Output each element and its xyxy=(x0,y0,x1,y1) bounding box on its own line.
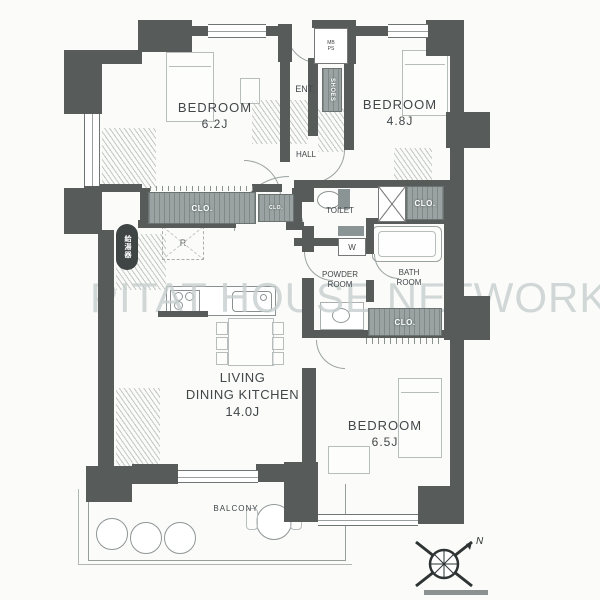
scale-bar xyxy=(424,590,488,595)
wall-segment xyxy=(98,184,142,192)
bath-line2: ROOM xyxy=(376,278,442,288)
wall-segment xyxy=(308,58,318,136)
curtain-hatch xyxy=(102,128,156,188)
wall-segment xyxy=(302,186,314,202)
curtain-hatch xyxy=(394,148,432,182)
wall-segment xyxy=(446,296,490,340)
curtain-hatch xyxy=(116,388,160,468)
window xyxy=(318,514,418,526)
wall-segment xyxy=(278,24,292,62)
entrance-label: ENT. xyxy=(284,84,326,96)
closet: CLO. xyxy=(406,186,444,220)
bedroom3-name: BEDROOM xyxy=(325,418,445,435)
water-heater-label: 給湯器 xyxy=(122,235,132,259)
washer-counter xyxy=(338,226,364,236)
wall-segment xyxy=(286,222,304,230)
ldk-size: 14.0J xyxy=(160,404,325,421)
wall-segment xyxy=(442,180,464,222)
compass-icon: N xyxy=(402,532,490,590)
bedroom3-size: 6.5J xyxy=(325,435,445,451)
bath-line1: BATH xyxy=(376,268,442,278)
wall-segment xyxy=(450,340,464,490)
window xyxy=(208,24,266,38)
closet: CLO. xyxy=(368,308,442,336)
closet: CLO. xyxy=(148,192,256,224)
powder-line1: POWDER xyxy=(305,270,375,280)
hall-label: HALL xyxy=(282,150,330,160)
bedroom2-label: BEDROOM 4.8J xyxy=(340,97,460,129)
dining-table xyxy=(228,318,274,366)
meter-box-label: MB PS xyxy=(325,40,337,52)
wall-segment xyxy=(138,20,192,52)
balcony-label: BALCONY xyxy=(196,504,276,514)
balcony-outer-line xyxy=(78,489,79,565)
sliding-door-ticks xyxy=(150,186,254,191)
chair xyxy=(272,322,284,335)
chair xyxy=(216,352,228,365)
kitchen-counter-edge xyxy=(158,311,208,317)
closet: CLO. xyxy=(258,194,294,222)
door-arc xyxy=(316,340,345,369)
wall-segment xyxy=(294,238,340,246)
meter-box: MB PS xyxy=(314,28,348,64)
bedroom3-label: BEDROOM 6.5J xyxy=(325,418,445,450)
powder-line2: ROOM xyxy=(305,280,375,290)
x-cross-icon xyxy=(379,187,405,221)
pipe-shaft xyxy=(378,186,406,222)
washer-label: W xyxy=(348,243,356,252)
floor-plan: PITAT HOUSE NETWORK xyxy=(0,0,600,600)
ldk-line1: LIVING xyxy=(160,370,325,387)
planter-icon xyxy=(96,518,128,550)
closet-label: CLO. xyxy=(414,199,435,208)
wall-segment xyxy=(284,462,318,522)
balcony-outer-line xyxy=(78,564,352,565)
water-heater: 給湯器 xyxy=(116,224,138,270)
chair xyxy=(272,337,284,350)
planter-icon xyxy=(164,522,196,554)
wall-segment xyxy=(132,464,178,484)
planter-icon xyxy=(130,522,162,554)
wall-segment xyxy=(366,218,374,254)
closet-label: CLO. xyxy=(394,318,415,327)
wall-segment xyxy=(252,184,282,192)
chair xyxy=(216,322,228,335)
washer-box: W xyxy=(338,238,366,256)
bedroom1-label: BEDROOM 6.2J xyxy=(145,100,285,132)
bedroom1-name: BEDROOM xyxy=(145,100,285,117)
wall-segment xyxy=(64,188,102,234)
wall-segment xyxy=(256,464,286,482)
ldk-line2: DINING KITCHEN xyxy=(160,387,325,404)
refrigerator-box: R xyxy=(162,226,204,260)
toilet-label: TOILET xyxy=(312,206,368,216)
shoes-label: SHOES xyxy=(329,78,335,102)
window xyxy=(388,24,428,38)
chair xyxy=(216,337,228,350)
closet-label: CLO. xyxy=(269,205,283,211)
sliding-door-ticks xyxy=(366,338,444,344)
bedroom2-name: BEDROOM xyxy=(340,97,460,114)
wall-segment xyxy=(64,50,102,114)
wall-segment xyxy=(188,26,210,36)
wall-segment xyxy=(100,50,142,64)
window xyxy=(84,114,100,186)
north-label: N xyxy=(476,536,484,547)
ldk-label: LIVING DINING KITCHEN 14.0J xyxy=(160,370,325,421)
chair xyxy=(272,352,284,365)
bedroom2-size: 4.8J xyxy=(340,114,460,130)
x-cross-icon xyxy=(163,227,203,259)
wall-segment xyxy=(86,466,132,502)
pillow xyxy=(401,379,439,393)
wall-segment xyxy=(354,26,390,36)
pillow xyxy=(169,53,211,67)
bedroom1-size: 6.2J xyxy=(145,117,285,133)
wall-segment xyxy=(98,230,114,470)
bath-room-label: BATH ROOM xyxy=(376,268,442,289)
powder-room-label: POWDER ROOM xyxy=(305,270,375,291)
balcony-sliding-window xyxy=(178,470,258,483)
closet-label: CLO. xyxy=(191,204,212,213)
wall-segment xyxy=(418,486,464,524)
wall-segment xyxy=(426,20,464,56)
